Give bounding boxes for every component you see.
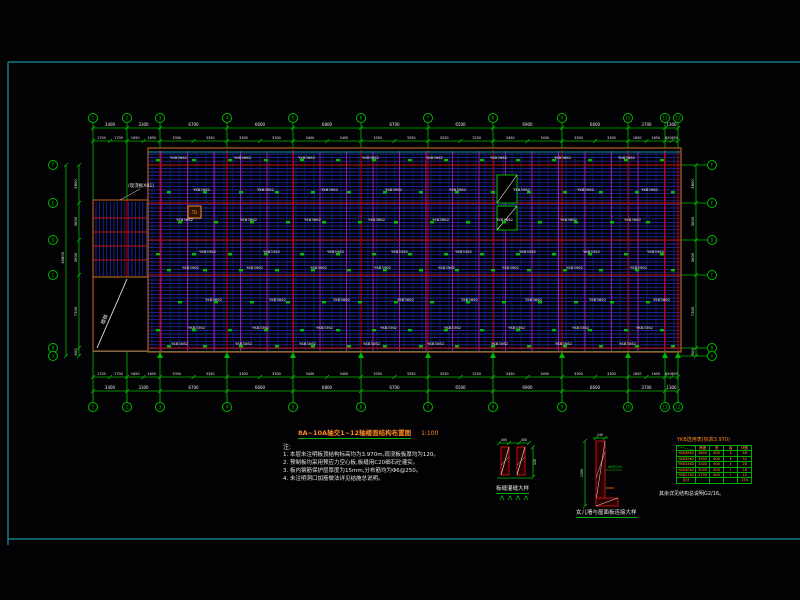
axis-bubble-label: 9 <box>561 116 564 121</box>
dim-text: 3350 <box>172 372 181 376</box>
rebar-symbol <box>516 159 520 161</box>
rebar-symbol <box>419 269 423 271</box>
rebar-symbol <box>599 345 603 347</box>
dim-text: 6600 <box>590 385 601 390</box>
plank-mark: YKB3362 <box>444 325 462 330</box>
plank-mark: YKB3962 <box>374 265 392 270</box>
rebar-symbol <box>322 301 326 303</box>
axis-bubble-label: 3 <box>159 405 162 410</box>
dim-text: 3250 <box>472 136 481 140</box>
dim-text: 1700 <box>114 136 123 140</box>
dim-text: 6700 <box>389 385 400 390</box>
dim-text: 3300 <box>272 372 281 376</box>
rebar-symbol <box>408 159 412 161</box>
plank-mark: YKB3362 <box>380 325 398 330</box>
notes-label: 注: <box>283 442 439 451</box>
dim-text: 3250 <box>440 372 449 376</box>
dim-text: 650 <box>672 372 678 376</box>
rebar-symbol <box>419 345 423 347</box>
dim-text: 3600 <box>690 216 695 226</box>
dim-text: 3400 <box>306 136 315 140</box>
rebar-symbol <box>491 269 495 271</box>
plank-mark: YKB3962 <box>385 187 403 192</box>
dim-text: 3700 <box>641 385 652 390</box>
plank-mark: YKB3662 <box>490 155 508 160</box>
dim-text: 6700 <box>188 122 199 127</box>
rebar-symbol <box>156 329 160 331</box>
stairwell-void <box>93 277 148 351</box>
dim-text: 6700 <box>389 122 400 127</box>
dim-text: 3400 <box>306 372 315 376</box>
table-row: 合计154 <box>677 478 752 483</box>
rebar-symbol <box>671 345 675 347</box>
rebar-symbol <box>563 191 567 193</box>
dim-text: 3700 <box>641 122 652 127</box>
rebar-symbol <box>671 269 675 271</box>
dim-text: 3400 <box>340 136 349 140</box>
axis-bubble-label: 10 <box>625 116 631 121</box>
rebar-symbol <box>358 221 362 223</box>
rebar-symbol <box>588 159 592 161</box>
dim-text: 3400 <box>105 385 116 390</box>
dim-text: 3400 <box>340 372 349 376</box>
dim-text: 3350 <box>172 136 181 140</box>
dim-text: 3350 <box>407 136 416 140</box>
plan-outline <box>148 148 681 352</box>
dim-text: 1300 <box>666 122 677 127</box>
plank-mark: YKB3962 <box>577 187 595 192</box>
plank-mark: YKB3062 <box>363 341 381 346</box>
dim-text: 3350 <box>373 372 382 376</box>
rebar-symbol <box>444 253 448 255</box>
plank-mark: YKB3962 <box>321 187 339 192</box>
rebar-symbol <box>192 159 196 161</box>
plank-mark: YKB3662 <box>618 155 636 160</box>
rebar-symbol <box>394 221 398 223</box>
dim-text: 7300 <box>690 306 695 316</box>
cast-slab-label: (现浇板XB1) <box>128 182 154 189</box>
plank-mark: YKB3662 <box>304 217 322 222</box>
cad-canvas: 楼梯TD(现浇板XB1)YKB3662YKB3662YKB3662YKB3662… <box>0 0 800 600</box>
rebar-symbol <box>527 345 531 347</box>
plank-mark: YKB3362 <box>636 325 654 330</box>
plank-mark: YKB3962 <box>257 187 275 192</box>
rebar-symbol <box>491 191 495 193</box>
axis-bubble-label: 9 <box>561 405 564 410</box>
dim-text: 800 <box>690 348 695 356</box>
plank-mark: YKB3662 <box>432 217 450 222</box>
plank-table: 跨度宽级块数YKB36623600600Ⅱ46YKB39623900600Ⅱ52… <box>676 445 752 484</box>
plank-mark: YKB3062 <box>427 341 445 346</box>
plan-line <box>58 0 94 356</box>
duct-box-label: TD <box>191 210 198 215</box>
rebar-symbol <box>502 301 506 303</box>
dim-text: 3400 <box>105 122 116 127</box>
axis-bubble-label: 4 <box>226 116 229 121</box>
dim-text: 3350 <box>373 136 382 140</box>
dim-text: 6700 <box>188 385 199 390</box>
dim-text: 3800 <box>690 179 695 189</box>
plank-mark: YKB3362 <box>572 325 590 330</box>
rebar-symbol <box>358 301 362 303</box>
dim-text: 800 <box>73 348 78 356</box>
axis-bubble-label: 1 <box>92 405 95 410</box>
axis-bubble-label: A <box>711 354 714 359</box>
axis-bubble-label: 8 <box>492 405 495 410</box>
axis-bubble-label: 1 <box>92 116 95 121</box>
dim-text: 3250 <box>472 372 481 376</box>
table-cell: YKB3662 <box>677 451 696 456</box>
axis-bubble-label: 5 <box>292 116 295 121</box>
rebar-symbol <box>646 221 650 223</box>
dim-text: 1700 <box>97 372 106 376</box>
plank-mark: YKB3362 <box>391 249 409 254</box>
rebar-symbol <box>552 253 556 255</box>
axis-bubble-label: 11 <box>662 116 668 121</box>
axis-bubble-label: 11 <box>662 405 668 410</box>
rebar-symbol <box>275 269 279 271</box>
table-cell <box>696 478 710 483</box>
dim-text: 18800 <box>60 251 65 264</box>
rebar-symbol <box>347 345 351 347</box>
rebar-symbol <box>480 253 484 255</box>
dim-text: 3300 <box>574 136 583 140</box>
axis-bubble-label: 5 <box>292 405 295 410</box>
rebar-symbol <box>610 221 614 223</box>
dim-text: 3250 <box>440 136 449 140</box>
axis-bubble-label: B <box>711 346 714 351</box>
plank-mark: YKB3662 <box>362 155 380 160</box>
rebar-symbol <box>156 253 160 255</box>
plank-mark: YKB3962 <box>193 187 211 192</box>
dim-text: 1850 <box>633 136 642 140</box>
rebar-symbol <box>286 221 290 223</box>
axis-bubble-label: A <box>52 354 55 359</box>
dim-text: 3300 <box>607 372 616 376</box>
rebar-symbol <box>300 253 304 255</box>
plank-mark: YKB3962 <box>182 265 200 270</box>
axis-bubble-label: 2 <box>126 116 129 121</box>
left-detail-label: 板缝灌缝大样 <box>496 484 529 494</box>
plank-mark: YKB3662 <box>234 155 252 160</box>
axis-bubble-label: 3 <box>159 116 162 121</box>
plank-mark: YKB3062 <box>491 341 509 346</box>
rebar-symbol <box>624 253 628 255</box>
plank-mark: YKB3662 <box>333 297 351 302</box>
rebar-symbol <box>610 301 614 303</box>
dim-text: 3300 <box>272 136 281 140</box>
rebar-symbol <box>264 159 268 161</box>
rebar-symbol <box>419 191 423 193</box>
plank-mark: YKB3662 <box>426 155 444 160</box>
axis-bubble-label: 8 <box>492 116 495 121</box>
plank-mark: YKB3062 <box>555 341 573 346</box>
rebar-symbol <box>167 269 171 271</box>
plank-mark: YKB3062 <box>235 341 253 346</box>
cad-drawing: 楼梯TD(现浇板XB1)YKB3662YKB3662YKB3662YKB3662… <box>0 0 800 600</box>
plan-line <box>58 0 94 348</box>
plank-mark: YKB3962 <box>310 265 328 270</box>
dim-text: 650 <box>672 136 678 140</box>
dim-text: 3800 <box>73 179 78 189</box>
dim-text: 1200 <box>580 469 584 477</box>
notes-list: 1. 本层未注明板顶结构标高均为3.970m,现浇板板厚均为120。2. 预制板… <box>283 451 439 483</box>
dim-text: 3450 <box>506 372 515 376</box>
leader-line <box>120 189 140 200</box>
rebar-symbol <box>203 269 207 271</box>
plank-mark: YKB3962 <box>502 265 520 270</box>
dim-text: 3300 <box>138 122 149 127</box>
dim-text: 1850 <box>651 136 660 140</box>
plank-mark: YKB3662 <box>554 155 572 160</box>
dim-text: 6800 <box>322 122 333 127</box>
dim-text: 1650 <box>147 372 156 376</box>
drawing-title: 8A~10A轴交1~12轴楼面结构布置图 <box>298 427 411 439</box>
rebar-symbol <box>156 159 160 161</box>
dim-text: 6800 <box>322 385 333 390</box>
plank-mark: YKB3962 <box>566 265 584 270</box>
plank-mark: YKB3962 <box>641 187 659 192</box>
rebar-symbol <box>660 329 664 331</box>
plank-mark: YKB3662 <box>240 217 258 222</box>
axis-bubble-label: 6 <box>360 116 363 121</box>
plank-mark: YKB3062 <box>171 341 189 346</box>
rebar-symbol <box>311 191 315 193</box>
dim-text: 400 <box>521 438 527 442</box>
plank-mark: YKB3662 <box>368 217 386 222</box>
plank-mark: YKB3962 <box>513 187 531 192</box>
dim-text: 3300 <box>239 136 248 140</box>
plank-mark: YKB3962 <box>438 265 456 270</box>
plank-mark: YKB3362 <box>316 325 334 330</box>
axis-bubble-label: 10 <box>625 405 631 410</box>
dim-text: 7300 <box>73 306 78 316</box>
rebar-symbol <box>383 345 387 347</box>
dim-text: 1700 <box>97 136 106 140</box>
rebar-symbol <box>466 221 470 223</box>
plank-mark: YKB3662 <box>496 217 514 222</box>
table-cell: YKB3362 <box>677 462 696 467</box>
dim-text: 3450 <box>506 136 515 140</box>
dim-text: 1850 <box>651 372 660 376</box>
dim-text: 400 <box>501 438 507 442</box>
rebar-symbol <box>527 269 531 271</box>
plank-table-title: YKB选用表(标高3.970) <box>677 436 730 443</box>
plank-mark: YKB3662 <box>298 155 316 160</box>
axis-bubble-label: 6 <box>360 405 363 410</box>
axis-bubble-label: 7 <box>427 116 430 121</box>
table-cell: YKB3062 <box>677 467 696 472</box>
rebar-hook <box>524 496 528 500</box>
plank-mark: YKB3662 <box>624 217 642 222</box>
dim-text: 240 <box>597 433 603 437</box>
dim-text: 3450 <box>540 136 549 140</box>
rebar-symbol <box>444 159 448 161</box>
dim-text: 1300 <box>666 385 677 390</box>
plank-mark: YKB3962 <box>630 265 648 270</box>
dim-text: 6600 <box>590 122 601 127</box>
plank-mark: YKB3062 <box>299 341 317 346</box>
rebar-symbol <box>372 329 376 331</box>
dim-text: 6600 <box>255 385 266 390</box>
axis-bubble-label: D <box>710 238 713 243</box>
rebar-symbol <box>538 221 542 223</box>
rebar-symbol <box>214 221 218 223</box>
dim-text: 3300 <box>239 372 248 376</box>
plank-mark: YKB3662 <box>176 217 194 222</box>
plank-mark: YKB3662 <box>653 297 671 302</box>
plank-mark: YKB3962 <box>246 265 264 270</box>
plank-mark: YKB3662 <box>589 297 607 302</box>
rebar-symbol <box>228 253 232 255</box>
plank-mark: YKB3362 <box>188 325 206 330</box>
plank-mark: YKB3662 <box>170 155 188 160</box>
rebar-symbol <box>228 159 232 161</box>
rebar-hook <box>500 496 504 500</box>
dim-text: 1700 <box>114 372 123 376</box>
table-cell: YKB3962 <box>677 456 696 461</box>
dim-text: 3600 <box>73 216 78 226</box>
dim-text: 3300 <box>607 136 616 140</box>
note-line: 2. 预制板均采用预应力空心板,板缝用C20细石砼灌实。 <box>283 459 439 467</box>
rebar-symbol <box>624 329 628 331</box>
dim-text: 3350 <box>407 372 416 376</box>
note-line: 4. 未注明洞口加筋做法详见结施总说明。 <box>283 475 439 483</box>
plank-mark: YKB3362 <box>263 249 281 254</box>
rebar-symbol <box>671 191 675 193</box>
left-wing-outline <box>93 200 148 277</box>
rebar-symbol <box>203 345 207 347</box>
plan-line <box>58 0 94 203</box>
plank-table-footnote: 其余详见结构总说明G2/16。 <box>659 490 724 497</box>
rebar-symbol <box>599 269 603 271</box>
rebar-symbol <box>239 191 243 193</box>
plan-line <box>58 0 94 275</box>
rebar-symbol <box>455 269 459 271</box>
rebar-symbol <box>336 329 340 331</box>
rebar-symbol <box>239 269 243 271</box>
table-cell: 154 <box>738 478 752 483</box>
rebar-hook <box>516 496 520 500</box>
rebar-symbol <box>372 253 376 255</box>
rebar-symbol <box>178 301 182 303</box>
plank-mark: YKB3362 <box>327 249 345 254</box>
rebar-symbol <box>599 191 603 193</box>
dim-text: 3300 <box>138 385 149 390</box>
rebar-symbol <box>347 191 351 193</box>
plank-mark: YKB3662 <box>205 297 223 302</box>
plank-mark: YKB3662 <box>269 297 287 302</box>
plank-mark: YKB3362 <box>199 249 217 254</box>
plan-line <box>58 0 149 165</box>
rebar-symbol <box>552 329 556 331</box>
rebar-symbol <box>455 345 459 347</box>
rebar-symbol <box>275 191 279 193</box>
dim-text: 3450 <box>540 372 549 376</box>
axis-bubble-label: 4 <box>226 405 229 410</box>
plank-mark: YKB3062 <box>619 341 637 346</box>
dim-text: 3350 <box>206 136 215 140</box>
dim-text: 6500 <box>455 385 466 390</box>
rebar-symbol <box>347 269 351 271</box>
dim-text: 3600 <box>690 252 695 262</box>
rebar-symbol <box>286 301 290 303</box>
rebar-symbol <box>300 329 304 331</box>
title-block: 8A~10A轴交1~12轴楼面结构布置图1:100 注: 1. 本层未注明板顶结… <box>283 420 439 483</box>
axis-bubble-label: D <box>51 238 54 243</box>
right-detail-label: 女儿墙与屋面板连接大样 <box>576 508 637 518</box>
rebar-symbol <box>408 253 412 255</box>
table-cell <box>724 478 738 483</box>
dim-text: 6500 <box>455 122 466 127</box>
plank-mark: YKB3662 <box>560 217 578 222</box>
rebar-symbol <box>408 329 412 331</box>
plank-mark: YKB3362 <box>647 249 665 254</box>
rebar-symbol <box>635 191 639 193</box>
plank-mark: YKB3962 <box>449 187 467 192</box>
axis-bubble-label: 12 <box>675 116 681 121</box>
axis-bubble-label: 7 <box>427 405 430 410</box>
plank-mark: YKB3662 <box>397 297 415 302</box>
dim-text: 1650 <box>131 136 140 140</box>
axis-bubble-label: C <box>52 273 55 278</box>
rebar-symbol <box>660 159 664 161</box>
rebar-symbol <box>167 191 171 193</box>
plank-mark: YKB3362 <box>252 325 270 330</box>
dim-text: 3350 <box>206 372 215 376</box>
drawing-scale: 1:100 <box>421 430 438 437</box>
rebar-symbol <box>228 329 232 331</box>
rebar-symbol <box>322 221 326 223</box>
rebar-hook <box>508 496 512 500</box>
plank-mark: YKB3362 <box>455 249 473 254</box>
rebar-symbol <box>275 345 279 347</box>
plank-mark: YKB3662 <box>461 297 479 302</box>
plank-mark: YKB3362 <box>508 325 526 330</box>
dim-text: 3300 <box>574 372 583 376</box>
axis-bubble-label: 2 <box>126 405 129 410</box>
note-line: 3. 板内钢筋保护层厚度为15mm,分布筋均为Φ6@250。 <box>283 467 439 475</box>
rebar-symbol <box>250 301 254 303</box>
plan-line <box>58 0 94 240</box>
dim-text: 6900 <box>522 385 533 390</box>
rebar-symbol <box>430 301 434 303</box>
rebar-note: Φ8@200 <box>608 465 622 469</box>
dim-text: 6600 <box>255 122 266 127</box>
dim-text: 6900 <box>522 122 533 127</box>
dim-text: 3600 <box>73 252 78 262</box>
rebar-symbol <box>336 159 340 161</box>
axis-bubble-label: 12 <box>675 405 681 410</box>
axis-bubble-label: C <box>711 273 714 278</box>
table-cell: 合计 <box>677 478 696 483</box>
dim-text: 1650 <box>131 372 140 376</box>
dim-text: 1850 <box>633 372 642 376</box>
plank-mark: YKB3362 <box>583 249 601 254</box>
rebar-symbol <box>646 301 650 303</box>
rebar-symbol <box>192 253 196 255</box>
dim-text: 120 <box>533 459 537 465</box>
plank-mark: YKB3662 <box>525 297 543 302</box>
table-cell <box>710 478 724 483</box>
rebar-symbol <box>574 301 578 303</box>
note-line: 1. 本层未注明板顶结构标高均为3.970m,现浇板板厚均为120。 <box>283 451 439 459</box>
rebar-symbol <box>480 329 484 331</box>
plank-mark: YKB3362 <box>519 249 537 254</box>
rebar-symbol <box>480 159 484 161</box>
dim-text: 1650 <box>147 136 156 140</box>
axis-bubble-label: B <box>52 346 55 351</box>
